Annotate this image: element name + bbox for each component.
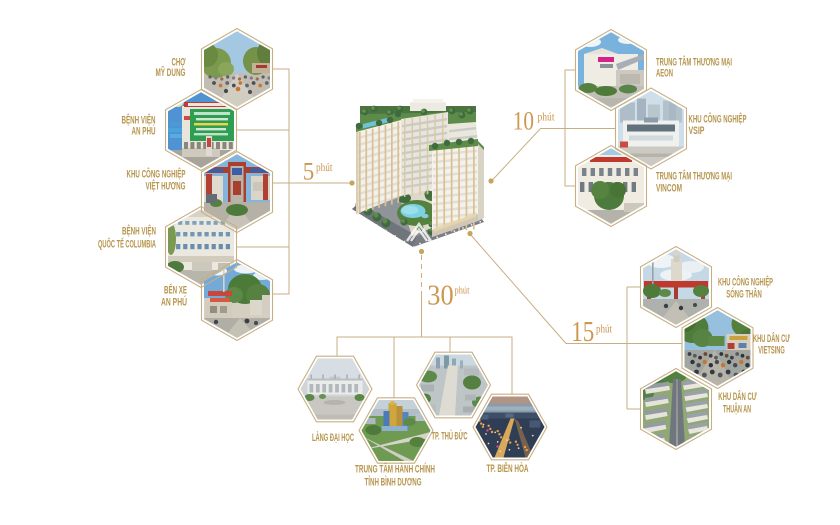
svg-text:KHU DÂN CƯ: KHU DÂN CƯ — [753, 332, 790, 345]
svg-text:VINCOM: VINCOM — [656, 183, 682, 195]
svg-text:TP. THỦ ĐỨC: TP. THỦ ĐỨC — [432, 430, 468, 443]
svg-text:TRUNG TÂM HÀNH CHÍNH: TRUNG TÂM HÀNH CHÍNH — [355, 463, 435, 476]
svg-text:AN PHÚ: AN PHÚ — [132, 125, 156, 138]
svg-text:phút: phút — [596, 322, 612, 336]
svg-text:phút: phút — [455, 285, 470, 297]
svg-text:BỆNH VIỆN: BỆNH VIỆN — [122, 225, 156, 238]
svg-text:KHU CÔNG NGHIỆP: KHU CÔNG NGHIỆP — [127, 168, 186, 181]
svg-text:AEON: AEON — [656, 68, 673, 80]
svg-text:SÓNG THẦN: SÓNG THẦN — [726, 288, 762, 301]
svg-text:30: 30 — [427, 281, 453, 312]
svg-text:5: 5 — [303, 159, 315, 186]
svg-text:MỸ DUNG: MỸ DUNG — [156, 66, 186, 79]
svg-text:KHU DÂN CƯ: KHU DÂN CƯ — [718, 390, 757, 403]
svg-text:KHU CÔNG NGHIỆP: KHU CÔNG NGHIỆP — [689, 113, 747, 126]
svg-text:TỈNH BÌNH DƯƠNG: TỈNH BÌNH DƯƠNG — [365, 476, 422, 489]
svg-text:BẾN XE: BẾN XE — [164, 284, 187, 297]
svg-text:AN PHÚ: AN PHÚ — [161, 296, 187, 309]
svg-text:TRUNG TÂM THƯƠNG MẠI: TRUNG TÂM THƯƠNG MẠI — [656, 170, 732, 183]
svg-text:LÀNG ĐẠI HỌC: LÀNG ĐẠI HỌC — [312, 431, 354, 444]
svg-text:15: 15 — [571, 317, 594, 348]
svg-text:phút: phút — [538, 110, 556, 124]
svg-text:THUẬN AN: THUẬN AN — [723, 403, 751, 416]
svg-text:10: 10 — [513, 106, 534, 135]
svg-text:TP. BIÊN HÒA: TP. BIÊN HÒA — [487, 462, 529, 475]
svg-text:VSIP: VSIP — [689, 125, 705, 137]
svg-text:VIỆT HƯƠNG: VIỆT HƯƠNG — [146, 180, 186, 193]
svg-text:QUỐC TẾ COLUMBIA: QUỐC TẾ COLUMBIA — [98, 237, 156, 251]
svg-text:KHU CÔNG NGHIỆP: KHU CÔNG NGHIỆP — [718, 276, 773, 289]
svg-text:phút: phút — [316, 160, 333, 174]
svg-text:VIETSING: VIETSING — [758, 345, 785, 357]
